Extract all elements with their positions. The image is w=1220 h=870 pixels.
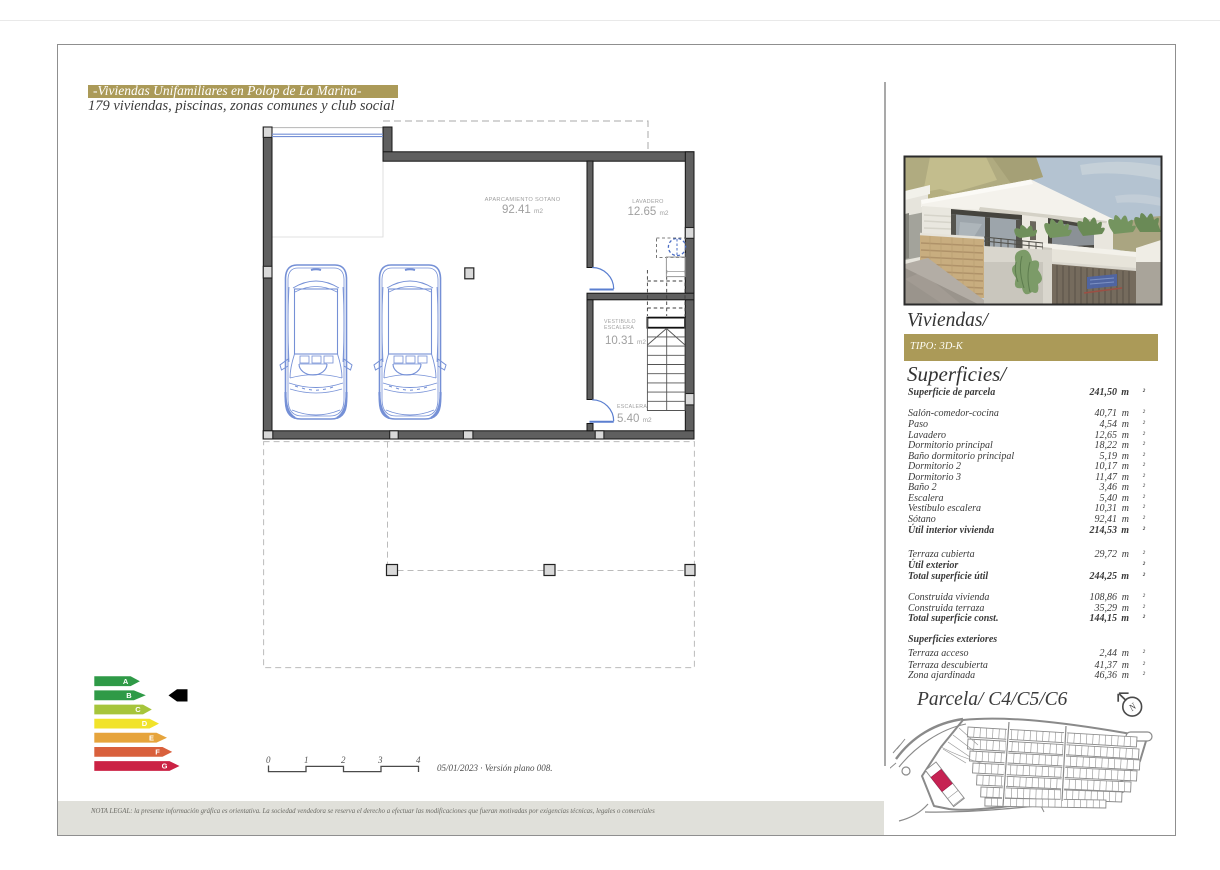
svg-text:E: E: [149, 733, 154, 742]
svg-text:3: 3: [377, 755, 383, 765]
svg-text:F: F: [155, 748, 160, 757]
svg-text:4: 4: [416, 755, 421, 765]
svg-text:G: G: [162, 762, 168, 771]
svg-text:C: C: [135, 705, 141, 714]
svg-text:D: D: [142, 719, 148, 728]
svg-text:1: 1: [304, 755, 309, 765]
svg-text:2: 2: [341, 755, 346, 765]
svg-text:B: B: [126, 691, 132, 700]
svg-text:A: A: [123, 677, 129, 686]
svg-text:0: 0: [266, 755, 271, 765]
